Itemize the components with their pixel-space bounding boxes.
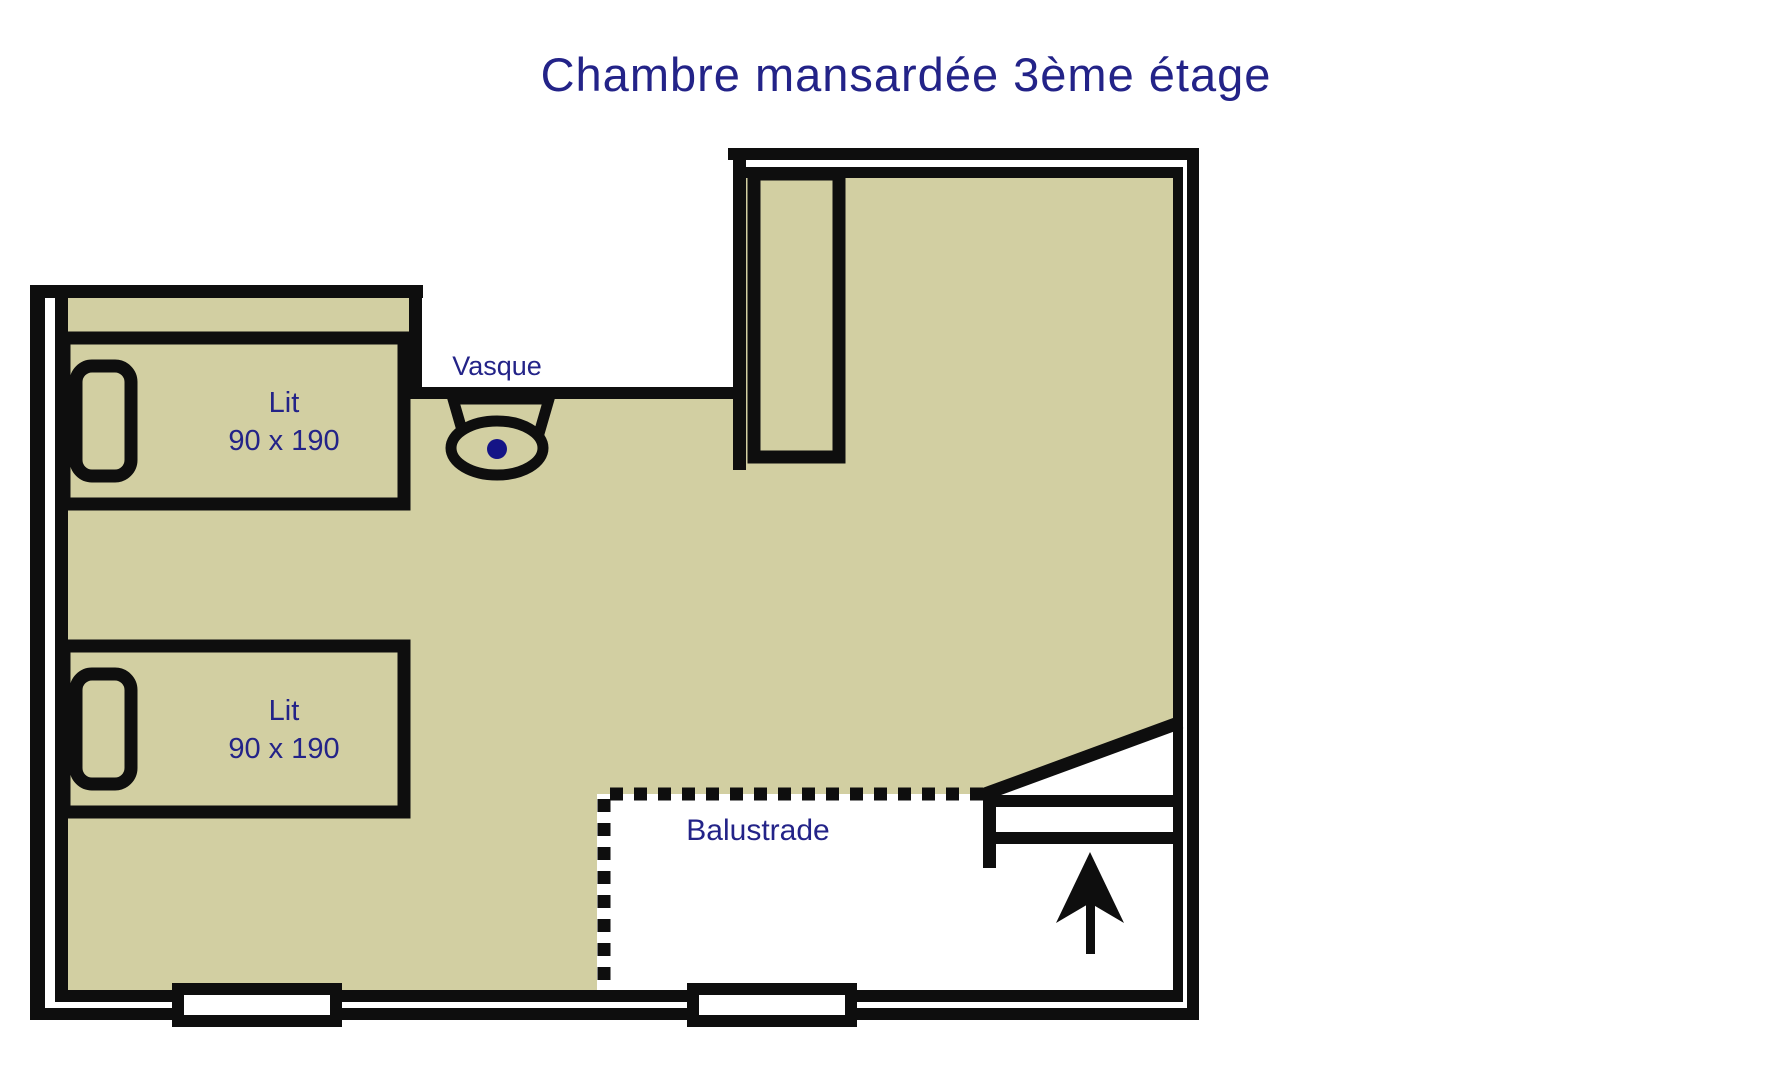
- sink: Vasque: [451, 351, 549, 475]
- page-title: Chambre mansardée 3ème étage: [541, 48, 1272, 101]
- wall-bed-area-top: [33, 285, 423, 298]
- wall-top-outer: [728, 148, 1199, 160]
- bed-2: Lit 90 x 190: [64, 646, 404, 812]
- wall-upper-room-left: [733, 148, 746, 470]
- wall-right-inner: [1173, 167, 1183, 1002]
- bed-1-pillow: [76, 366, 131, 476]
- floor-plan: Chambre mansardée 3ème étage Lit 90 x 19…: [0, 0, 1784, 1080]
- bed-2-pillow: [76, 674, 131, 784]
- window-2: [693, 989, 851, 1021]
- wall-left-outer: [30, 285, 45, 1020]
- stair-up-arrow-stem: [1086, 903, 1095, 954]
- stair-tread-2: [996, 832, 1173, 844]
- bed-1-label: Lit: [269, 387, 300, 419]
- bed-2-label: Lit: [269, 695, 300, 727]
- floor-plan-svg: Chambre mansardée 3ème étage Lit 90 x 19…: [0, 0, 1784, 1080]
- sink-label: Vasque: [452, 351, 542, 381]
- wall-bed-area-right: [409, 285, 422, 399]
- balustrade-label: Balustrade: [686, 814, 829, 847]
- stair-tread-1: [996, 795, 1173, 807]
- bed-1: Lit 90 x 190: [64, 338, 404, 504]
- bed-1-size-label: 90 x 190: [228, 425, 339, 457]
- stair-post: [983, 788, 996, 868]
- window-1: [178, 989, 336, 1021]
- closet: [754, 174, 839, 457]
- bed-2-size-label: 90 x 190: [228, 733, 339, 765]
- wall-right-outer: [1187, 148, 1199, 1020]
- sink-drain-dot: [487, 439, 507, 459]
